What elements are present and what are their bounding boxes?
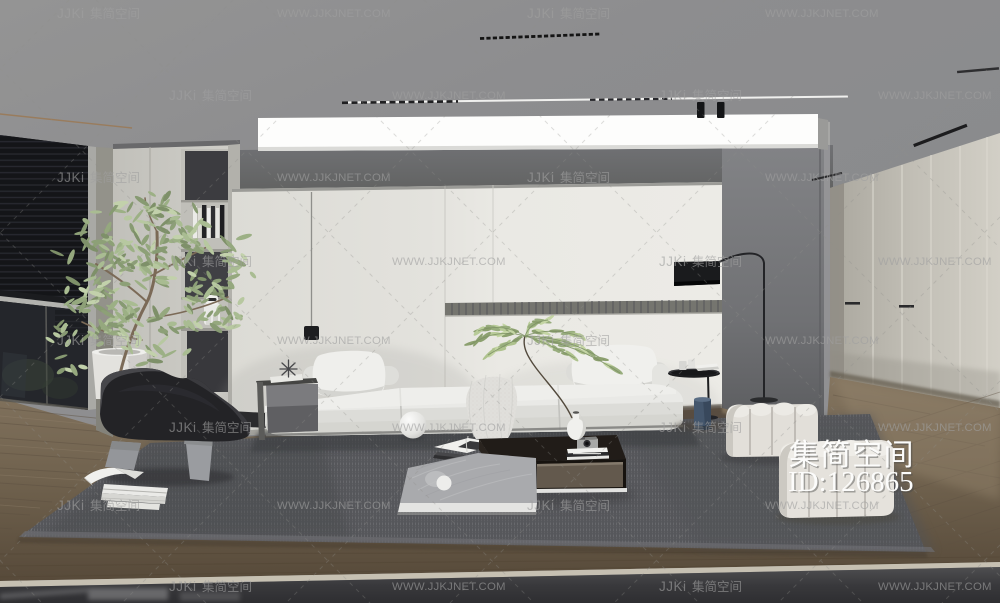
svg-text:ID:126865: ID:126865 [788, 466, 914, 498]
svg-text:集简空间: 集简空间 [202, 88, 252, 103]
svg-text:WWW.JJKJNET.COM: WWW.JJKJNET.COM [392, 422, 506, 434]
svg-text:JJKi: JJKi [659, 420, 687, 435]
svg-text:集简空间: 集简空间 [202, 579, 252, 594]
svg-text:集简空间: 集简空间 [90, 170, 140, 185]
svg-text:JJKi: JJKi [527, 170, 555, 185]
svg-text:JJKi: JJKi [169, 88, 197, 103]
svg-text:JJKi: JJKi [57, 170, 85, 185]
svg-text:WWW.JJKJNET.COM: WWW.JJKJNET.COM [277, 500, 391, 512]
svg-text:WWW.JJKJNET.COM: WWW.JJKJNET.COM [277, 172, 391, 184]
svg-text:WWW.JJKJNET.COM: WWW.JJKJNET.COM [277, 8, 391, 20]
svg-text:集简空间: 集简空间 [560, 6, 610, 21]
svg-text:集简空间: 集简空间 [90, 6, 140, 21]
svg-text:WWW.JJKJNET.COM: WWW.JJKJNET.COM [765, 8, 879, 20]
svg-text:集简空间: 集简空间 [560, 498, 610, 513]
svg-text:集简空间: 集简空间 [692, 88, 742, 103]
svg-text:JJKi: JJKi [57, 333, 85, 348]
svg-text:WWW.JJKJNET.COM: WWW.JJKJNET.COM [277, 335, 391, 347]
svg-text:集简空间: 集简空间 [90, 498, 140, 513]
svg-text:JJKi: JJKi [659, 254, 687, 269]
svg-text:集简空间: 集简空间 [90, 333, 140, 348]
svg-text:集简空间: 集简空间 [560, 170, 610, 185]
svg-text:WWW.JJKJNET.COM: WWW.JJKJNET.COM [765, 172, 879, 184]
svg-text:JJKi: JJKi [169, 420, 197, 435]
svg-text:WWW.JJKJNET.COM: WWW.JJKJNET.COM [878, 90, 992, 102]
svg-text:WWW.JJKJNET.COM: WWW.JJKJNET.COM [878, 422, 992, 434]
svg-text:集简空间: 集简空间 [202, 420, 252, 435]
svg-text:集简空间: 集简空间 [692, 420, 742, 435]
svg-text:JJKi: JJKi [527, 6, 555, 21]
svg-text:集简空间: 集简空间 [202, 254, 252, 269]
svg-text:WWW.JJKJNET.COM: WWW.JJKJNET.COM [765, 335, 879, 347]
svg-text:WWW.JJKJNET.COM: WWW.JJKJNET.COM [392, 256, 506, 268]
svg-text:集简空间: 集简空间 [692, 579, 742, 594]
svg-text:JJKi: JJKi [527, 498, 555, 513]
svg-text:JJKi: JJKi [527, 333, 555, 348]
svg-text:JJKi: JJKi [169, 579, 197, 594]
svg-text:WWW.JJKJNET.COM: WWW.JJKJNET.COM [765, 500, 879, 512]
svg-text:WWW.JJKJNET.COM: WWW.JJKJNET.COM [392, 90, 506, 102]
svg-text:JJKi: JJKi [57, 498, 85, 513]
svg-text:集简空间: 集简空间 [560, 333, 610, 348]
svg-text:JJKi: JJKi [659, 579, 687, 594]
svg-text:WWW.JJKJNET.COM: WWW.JJKJNET.COM [878, 581, 992, 593]
svg-text:WWW.JJKJNET.COM: WWW.JJKJNET.COM [878, 256, 992, 268]
svg-text:集简空间: 集简空间 [692, 254, 742, 269]
svg-text:JJKi: JJKi [57, 6, 85, 21]
svg-text:WWW.JJKJNET.COM: WWW.JJKJNET.COM [392, 581, 506, 593]
svg-text:JJKi: JJKi [659, 88, 687, 103]
svg-text:JJKi: JJKi [169, 254, 197, 269]
